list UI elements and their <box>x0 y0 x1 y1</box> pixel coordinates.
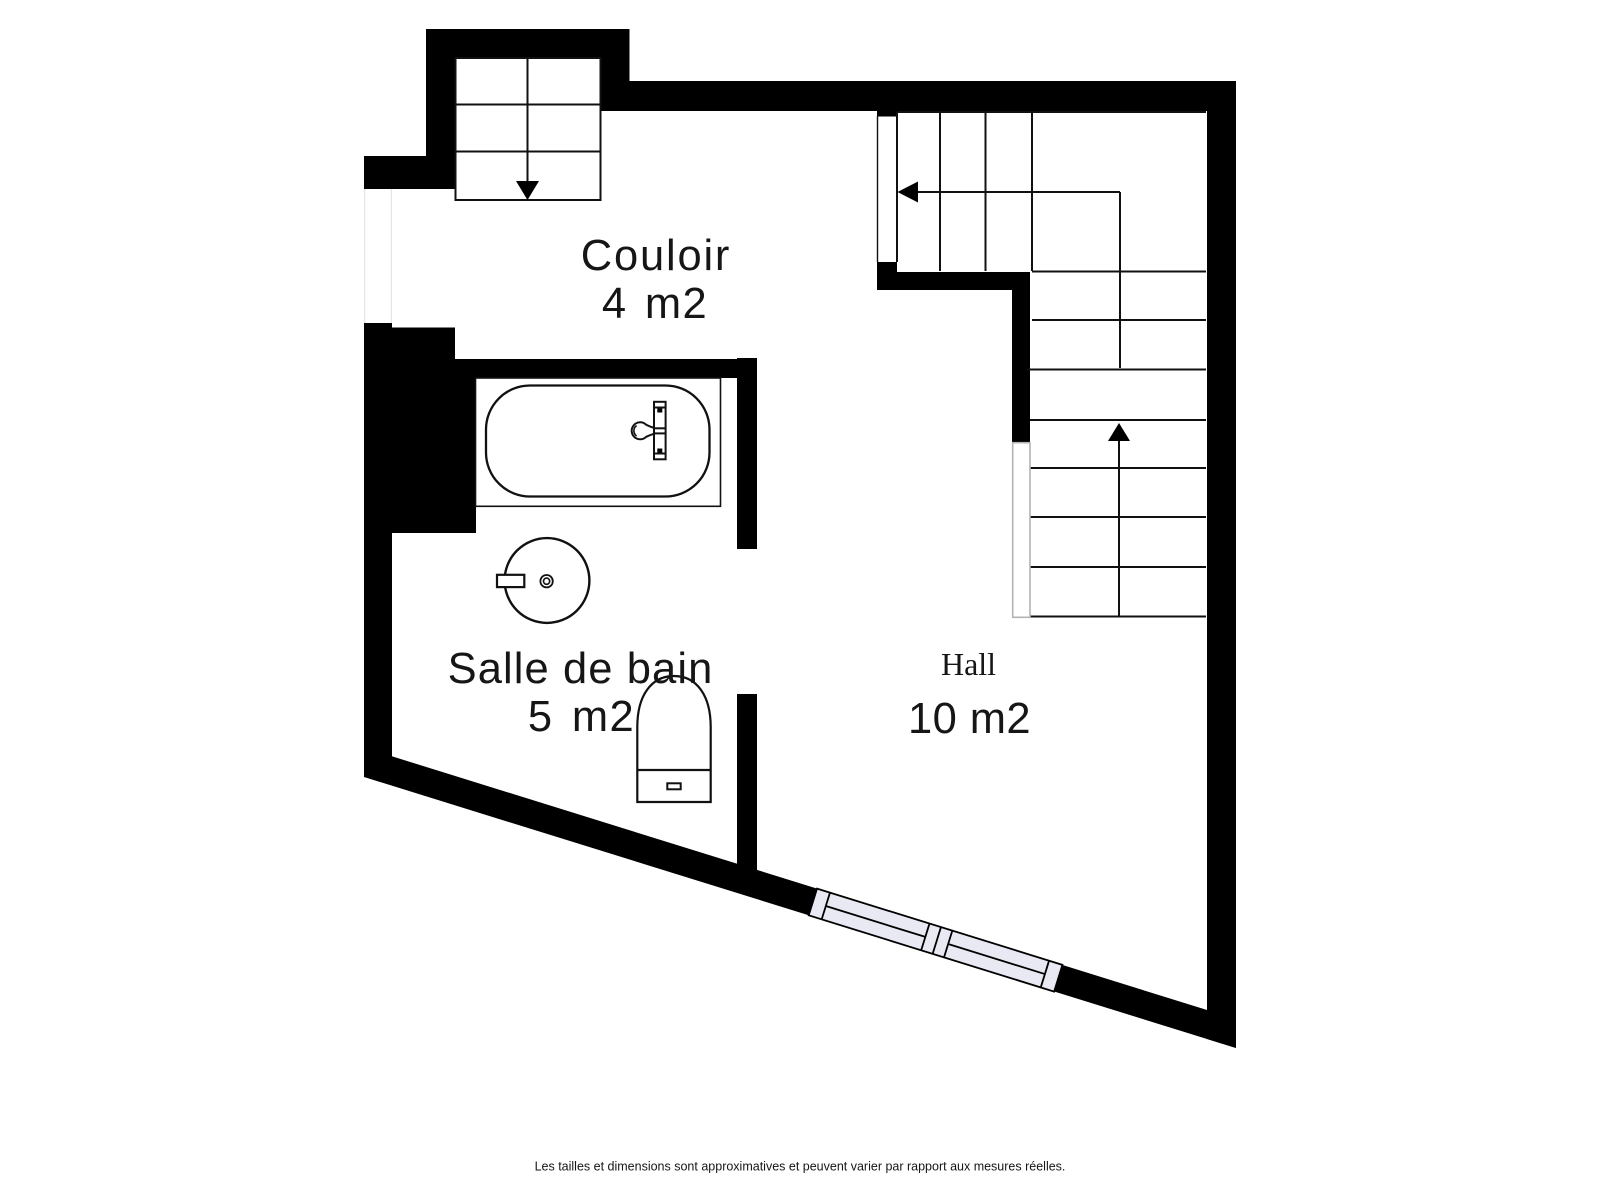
svg-text:Les tailles et dimensions sont: Les tailles et dimensions sont approxima… <box>535 1160 1066 1174</box>
svg-text:Salle de bain: Salle de bain <box>448 645 714 693</box>
svg-text:Couloir: Couloir <box>581 232 731 280</box>
svg-text:5 m2: 5 m2 <box>528 693 635 741</box>
svg-text:4 m2: 4 m2 <box>602 280 708 328</box>
svg-text:Hall: Hall <box>941 646 996 682</box>
svg-text:10 m2: 10 m2 <box>908 695 1031 743</box>
